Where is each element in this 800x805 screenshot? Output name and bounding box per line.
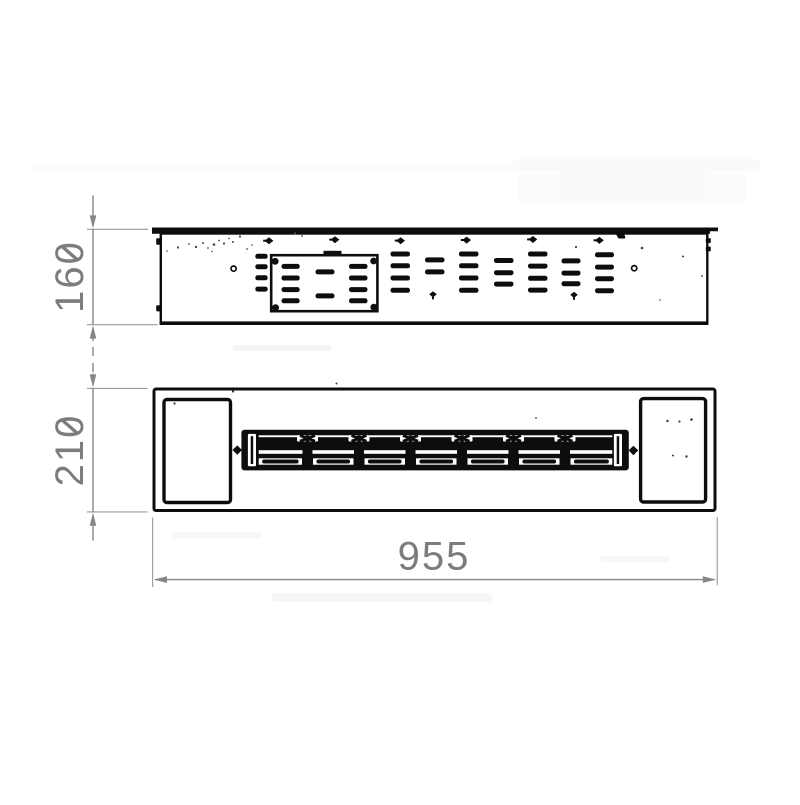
svg-text:160: 160 xyxy=(48,240,92,313)
svg-text:955: 955 xyxy=(398,535,471,579)
svg-text:210: 210 xyxy=(48,414,92,487)
